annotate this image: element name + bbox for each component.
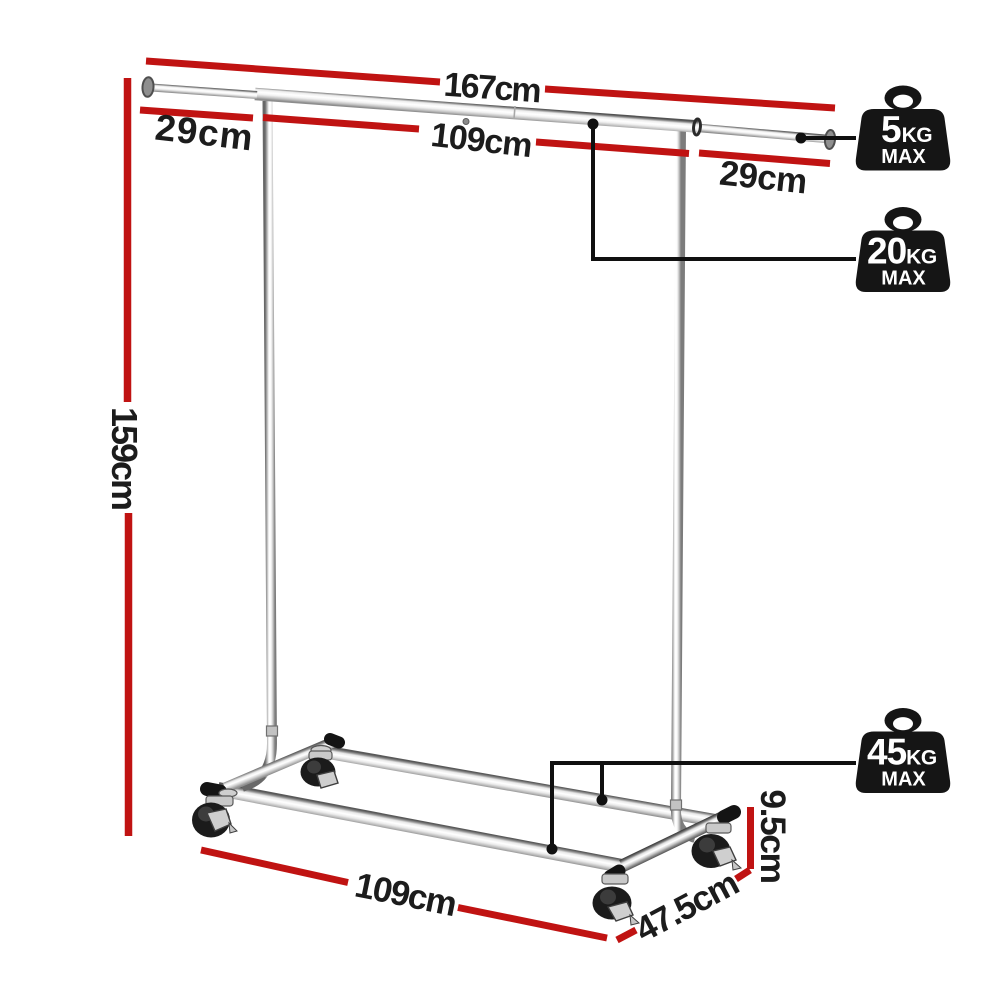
svg-text:167cm: 167cm — [443, 66, 542, 111]
svg-text:MAX: MAX — [881, 769, 926, 791]
svg-text:MAX: MAX — [881, 268, 926, 290]
svg-text:9.5cm: 9.5cm — [753, 789, 793, 882]
svg-text:159cm: 159cm — [104, 407, 145, 509]
svg-text:MAX: MAX — [881, 146, 926, 168]
